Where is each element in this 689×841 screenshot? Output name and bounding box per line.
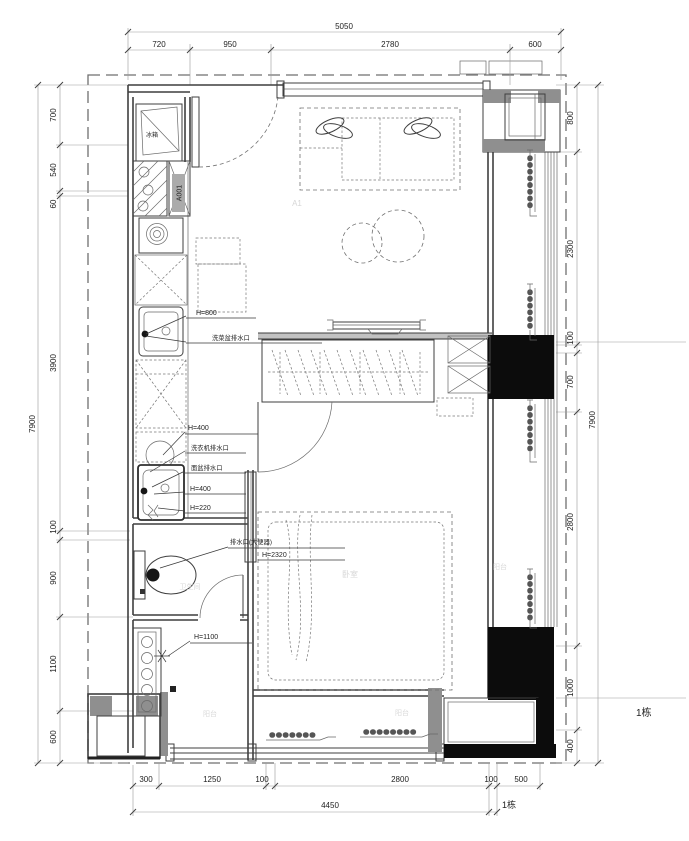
building-label-bottom: 1栋 <box>502 799 516 810</box>
window-bottom-right <box>428 688 556 758</box>
dim-bottom-4: 2800 <box>391 775 409 784</box>
bedroom-door-swing <box>258 402 332 472</box>
column-fills <box>488 335 554 700</box>
stove-symbol <box>139 218 183 253</box>
door-tag-a001: A001 <box>177 185 184 201</box>
counter-hatch <box>133 161 167 216</box>
label-basin-height: H=400 <box>190 486 211 493</box>
label-floor-drain-height: H=220 <box>190 505 211 512</box>
dim-right-3: 100 <box>566 331 575 345</box>
kitchen-sink-symbol <box>139 307 183 356</box>
dim-left-2: 540 <box>49 163 58 177</box>
dim-right-1: 800 <box>566 111 575 125</box>
dim-top-1: 720 <box>152 40 166 49</box>
dim-right-7: 400 <box>566 739 575 753</box>
dim-top-3: 2780 <box>381 40 399 49</box>
watermark-balcony-3: 阳台 <box>493 562 507 571</box>
dim-top-total: 5050 <box>335 22 353 31</box>
dim-left-4: 3900 <box>49 354 58 372</box>
fridge-symbol <box>136 104 182 161</box>
toilet-symbol <box>134 551 196 599</box>
dim-left-5: 100 <box>49 520 58 534</box>
window-bay-top-right <box>483 90 560 152</box>
watermark-bathroom: 卫生间 <box>180 582 201 591</box>
dim-left-3: 60 <box>49 199 58 208</box>
dim-top-4: 600 <box>528 40 542 49</box>
label-washer-height: H=400 <box>188 425 209 432</box>
annotation-text: H=800 洗菜盆排水口 H=400 洗衣机排水口 面盆排水口 H=400 H=… <box>188 310 287 641</box>
dim-top-2: 950 <box>223 40 237 49</box>
dim-left-1: 700 <box>49 108 58 122</box>
bed-symbol <box>258 512 452 690</box>
building-label-right: 1栋 <box>636 706 652 719</box>
label-washer-drain: 洗衣机排水口 <box>191 443 229 452</box>
door-panel-a001: A001 <box>169 161 190 216</box>
watermark-bedroom: 卧室 <box>342 569 358 579</box>
dim-right-5: 2800 <box>566 513 575 531</box>
label-basin-drain: 面盆排水口 <box>191 463 222 472</box>
tv-symbol <box>327 320 426 334</box>
label-sink-drain: 洗菜盆排水口 <box>212 333 250 342</box>
dim-bottom-6: 500 <box>514 775 528 784</box>
dim-bottom-total: 4450 <box>321 801 339 810</box>
dim-left-7: 1100 <box>49 655 58 673</box>
label-toilet-height: H=2320 <box>262 552 287 559</box>
bathroom-door-swing <box>200 575 243 618</box>
table-symbol <box>196 210 424 312</box>
washing-machine-symbol <box>136 360 186 428</box>
watermark-balcony-2: 阳台 <box>395 708 409 717</box>
sofa-symbol <box>300 108 460 190</box>
label-toilet-drain: 排水口(大便器) <box>230 537 272 546</box>
dim-right-2: 2300 <box>566 240 575 258</box>
dim-left-8: 600 <box>49 730 58 744</box>
elevator-shaft <box>88 694 160 758</box>
dim-left-total: 7900 <box>28 415 37 433</box>
dim-bottom-2: 1250 <box>203 775 221 784</box>
kitchen-counter <box>135 255 187 305</box>
dim-bottom-5: 100 <box>484 775 498 784</box>
dim-right-6: 1000 <box>566 679 575 697</box>
dim-bottom-3: 100 <box>255 775 269 784</box>
label-switch-height: H=1100 <box>194 634 218 641</box>
floor-plan-drawing: 5050 720 950 2780 600 7900 700 540 60 39… <box>0 0 689 841</box>
label-sink-height: H=800 <box>196 310 217 317</box>
watermark-unit: A1 <box>292 199 302 208</box>
dim-right-4: 700 <box>566 375 575 389</box>
floor-plan-canvas: 5050 720 950 2780 600 7900 700 540 60 39… <box>0 0 689 841</box>
wardrobe-symbol <box>262 336 490 416</box>
dim-left-6: 900 <box>49 571 58 585</box>
watermark-fridge: 冰箱 <box>146 131 158 139</box>
dim-bottom-1: 300 <box>139 775 153 784</box>
watermark-balcony-1: 阳台 <box>203 709 217 718</box>
dim-right-total: 7900 <box>588 411 597 429</box>
entry-door-swing <box>192 97 278 167</box>
